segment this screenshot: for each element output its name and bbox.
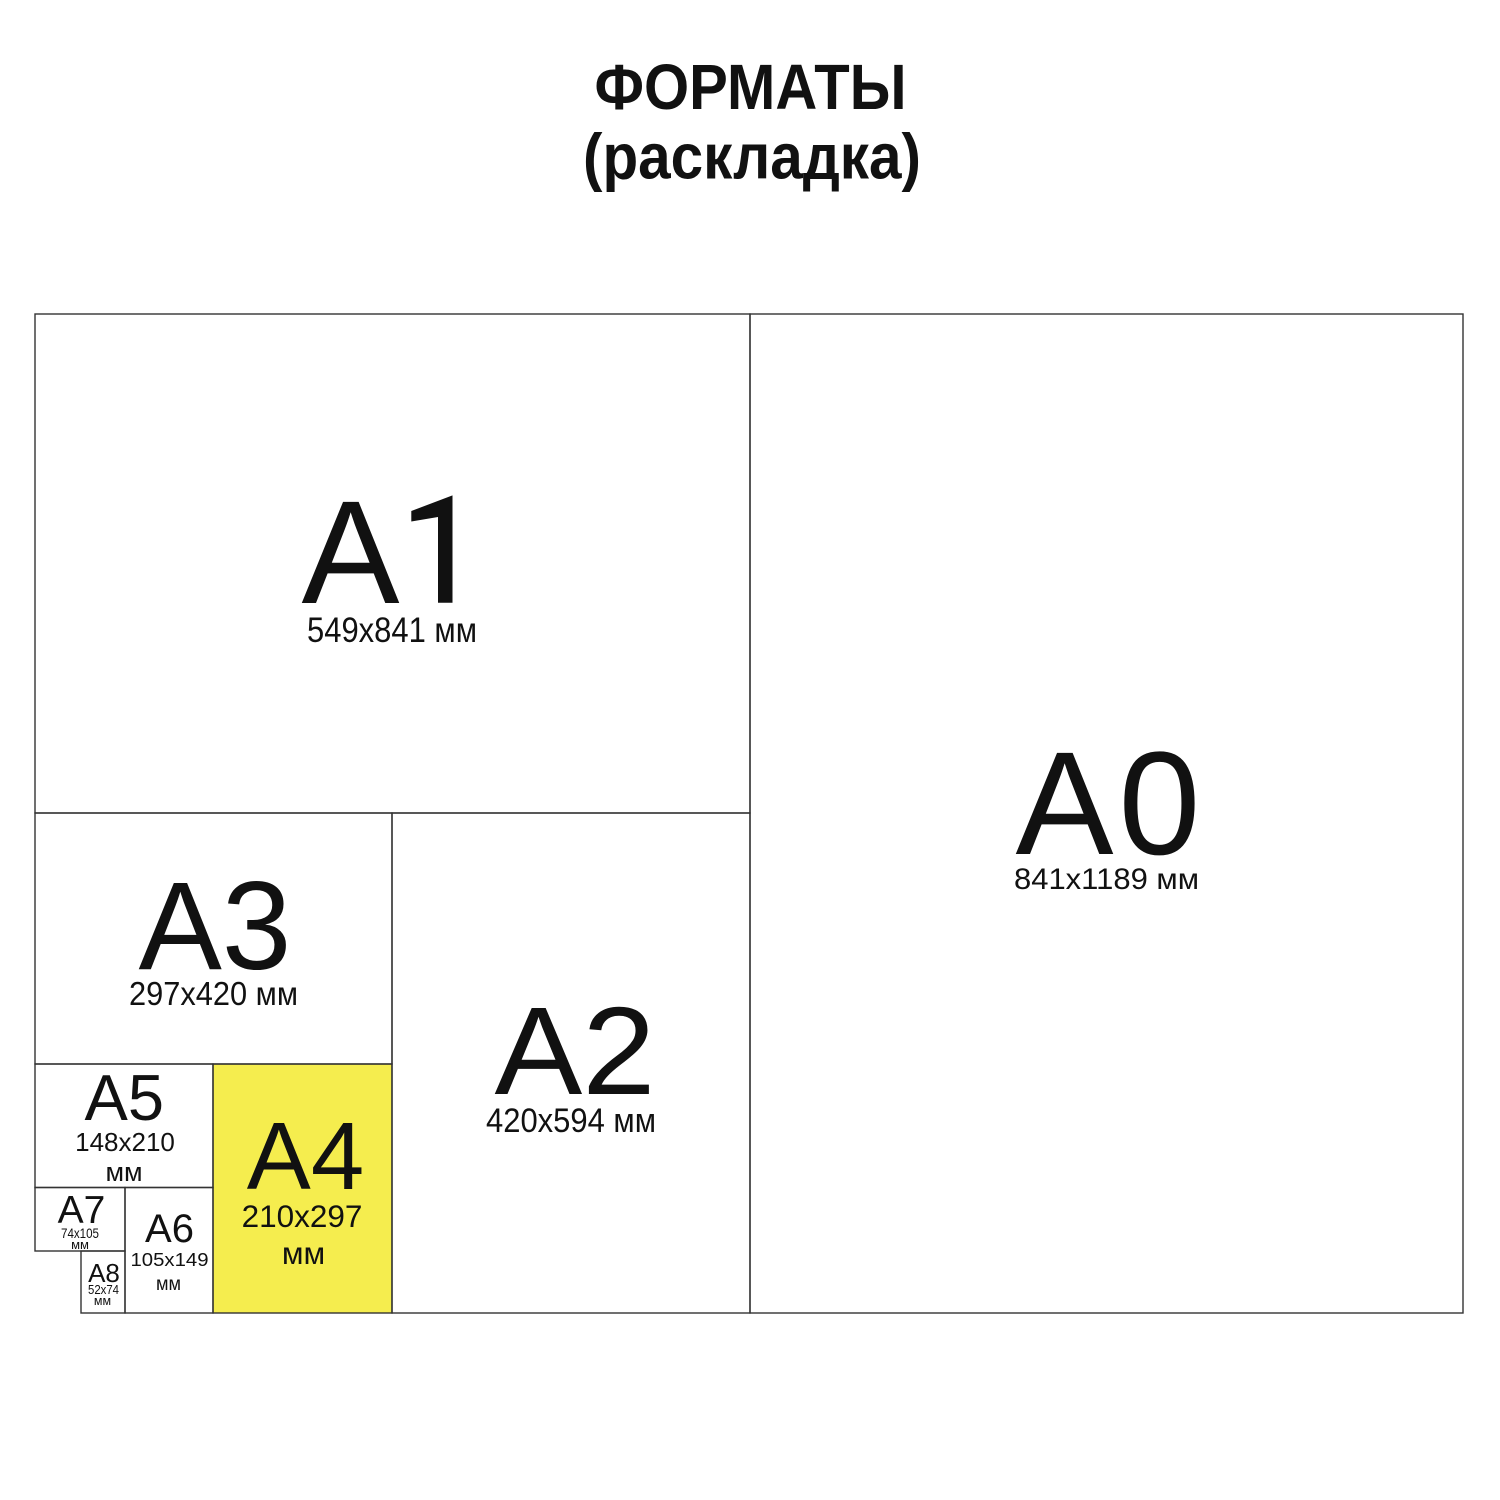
svg-text:105x149: 105x149: [131, 1249, 209, 1270]
svg-text:841x1189 мм: 841x1189 мм: [1014, 863, 1199, 896]
svg-text:A0: A0: [1016, 722, 1201, 886]
svg-text:мм: мм: [94, 1294, 111, 1308]
svg-text:420x594 мм: 420x594 мм: [486, 1102, 656, 1140]
svg-text:A2: A2: [495, 982, 656, 1121]
svg-text:A4: A4: [247, 1103, 364, 1210]
svg-text:мм: мм: [156, 1274, 181, 1295]
svg-text:549x841 мм: 549x841 мм: [307, 611, 477, 650]
svg-text:мм: мм: [105, 1157, 142, 1187]
svg-text:A6: A6: [145, 1207, 194, 1251]
svg-text:ФОРМАТЫ: ФОРМАТЫ: [595, 51, 907, 123]
svg-text:мм: мм: [282, 1235, 325, 1271]
svg-text:(раскладка): (раскладка): [583, 121, 921, 193]
svg-text:мм: мм: [71, 1237, 89, 1252]
svg-text:A5: A5: [85, 1061, 165, 1134]
svg-text:148x210: 148x210: [75, 1127, 175, 1157]
svg-text:210x297: 210x297: [242, 1198, 363, 1234]
svg-text:297x420 мм: 297x420 мм: [129, 975, 298, 1012]
